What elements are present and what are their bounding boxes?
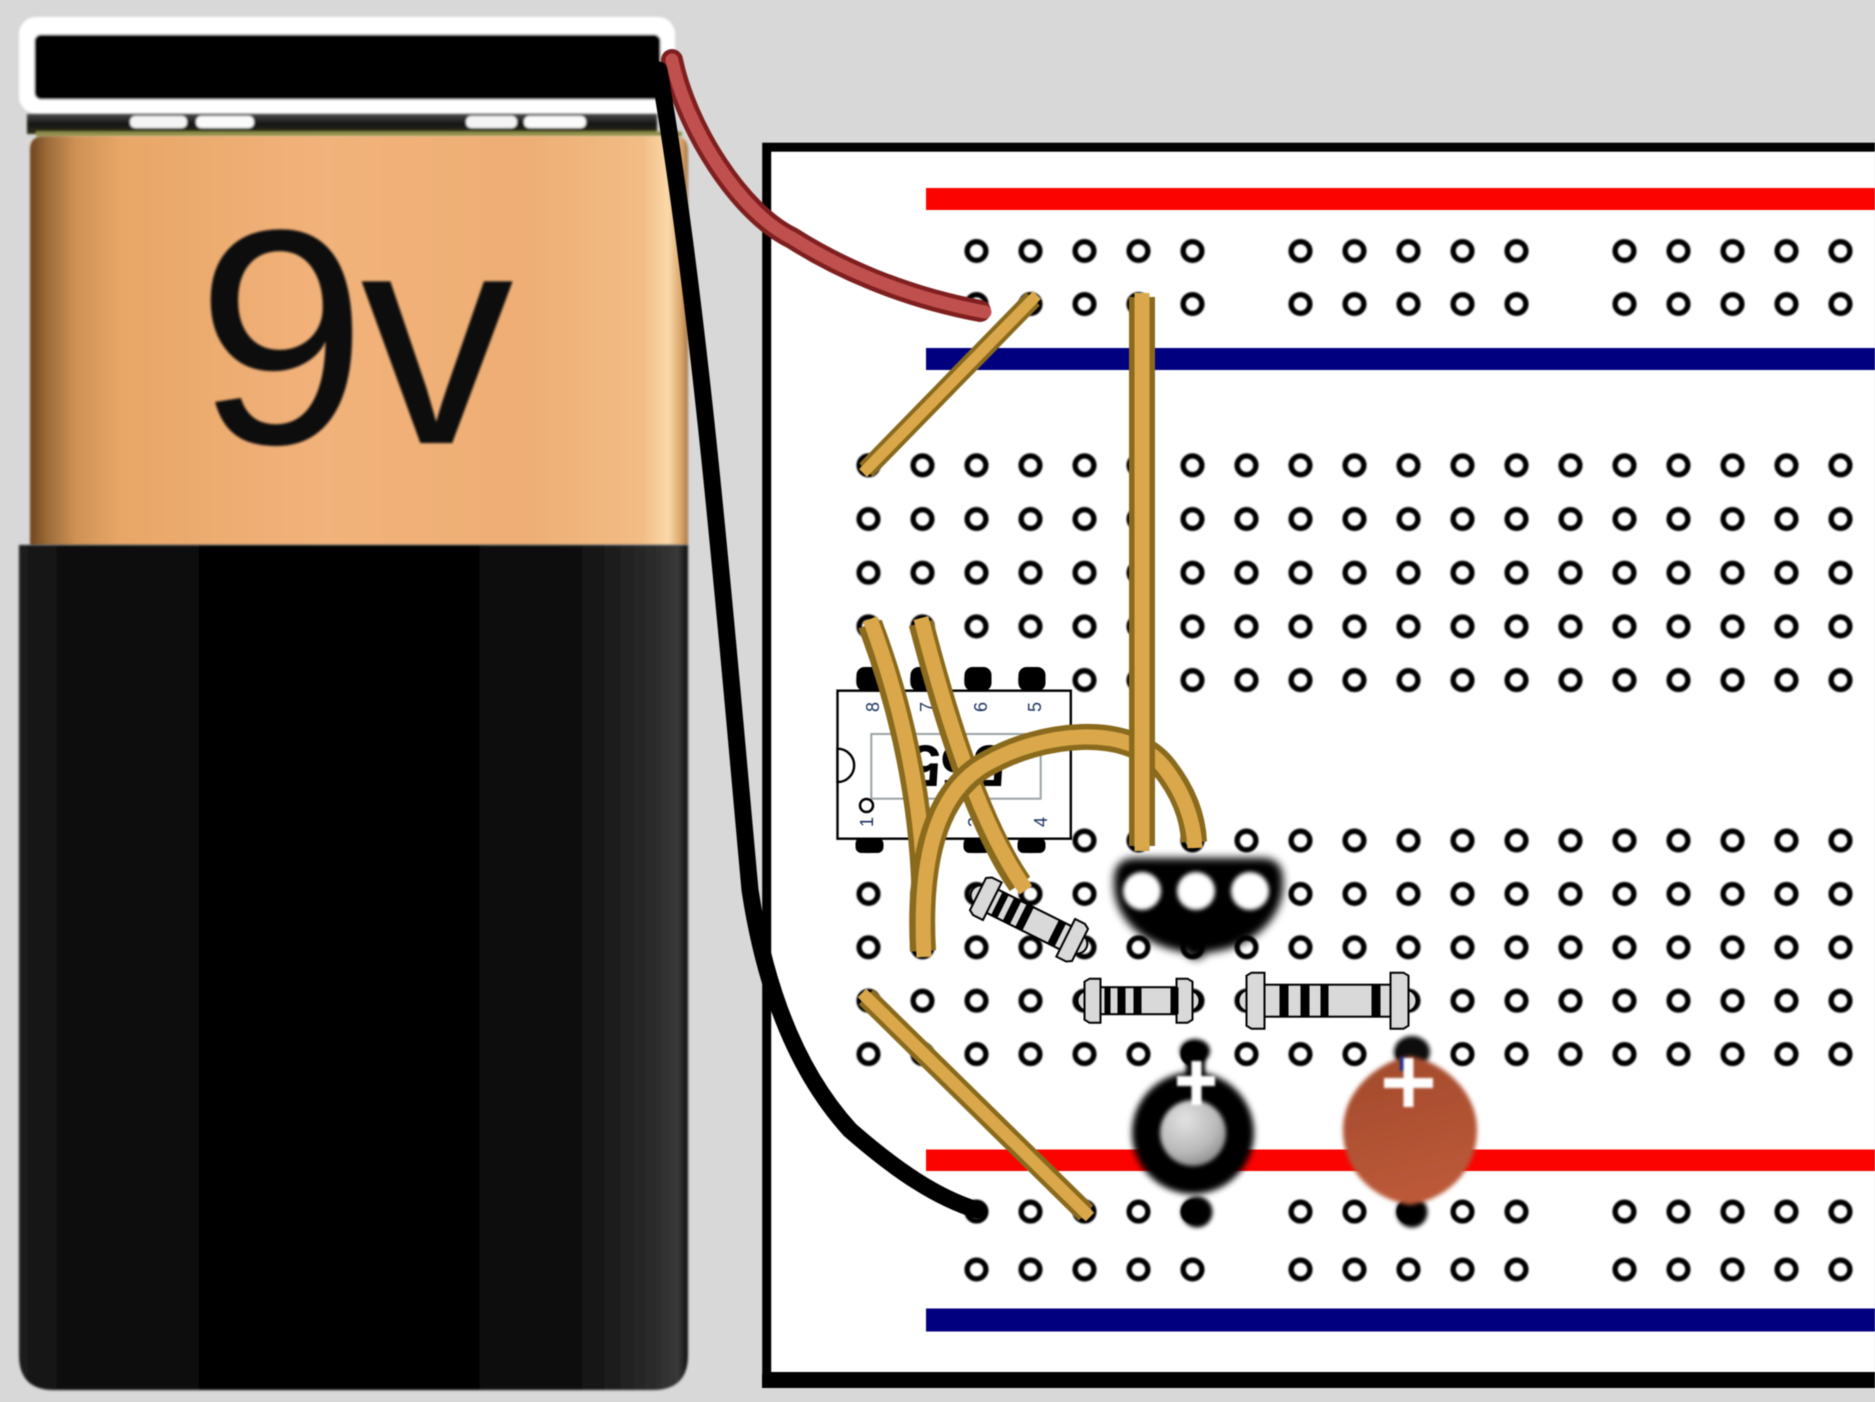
svg-text:8: 8 [863,702,883,712]
svg-text:4: 4 [1031,817,1051,827]
svg-text:6: 6 [971,702,991,712]
svg-text:5: 5 [1025,702,1045,712]
svg-text:1: 1 [857,817,877,827]
svg-text:9v: 9v [196,166,513,508]
